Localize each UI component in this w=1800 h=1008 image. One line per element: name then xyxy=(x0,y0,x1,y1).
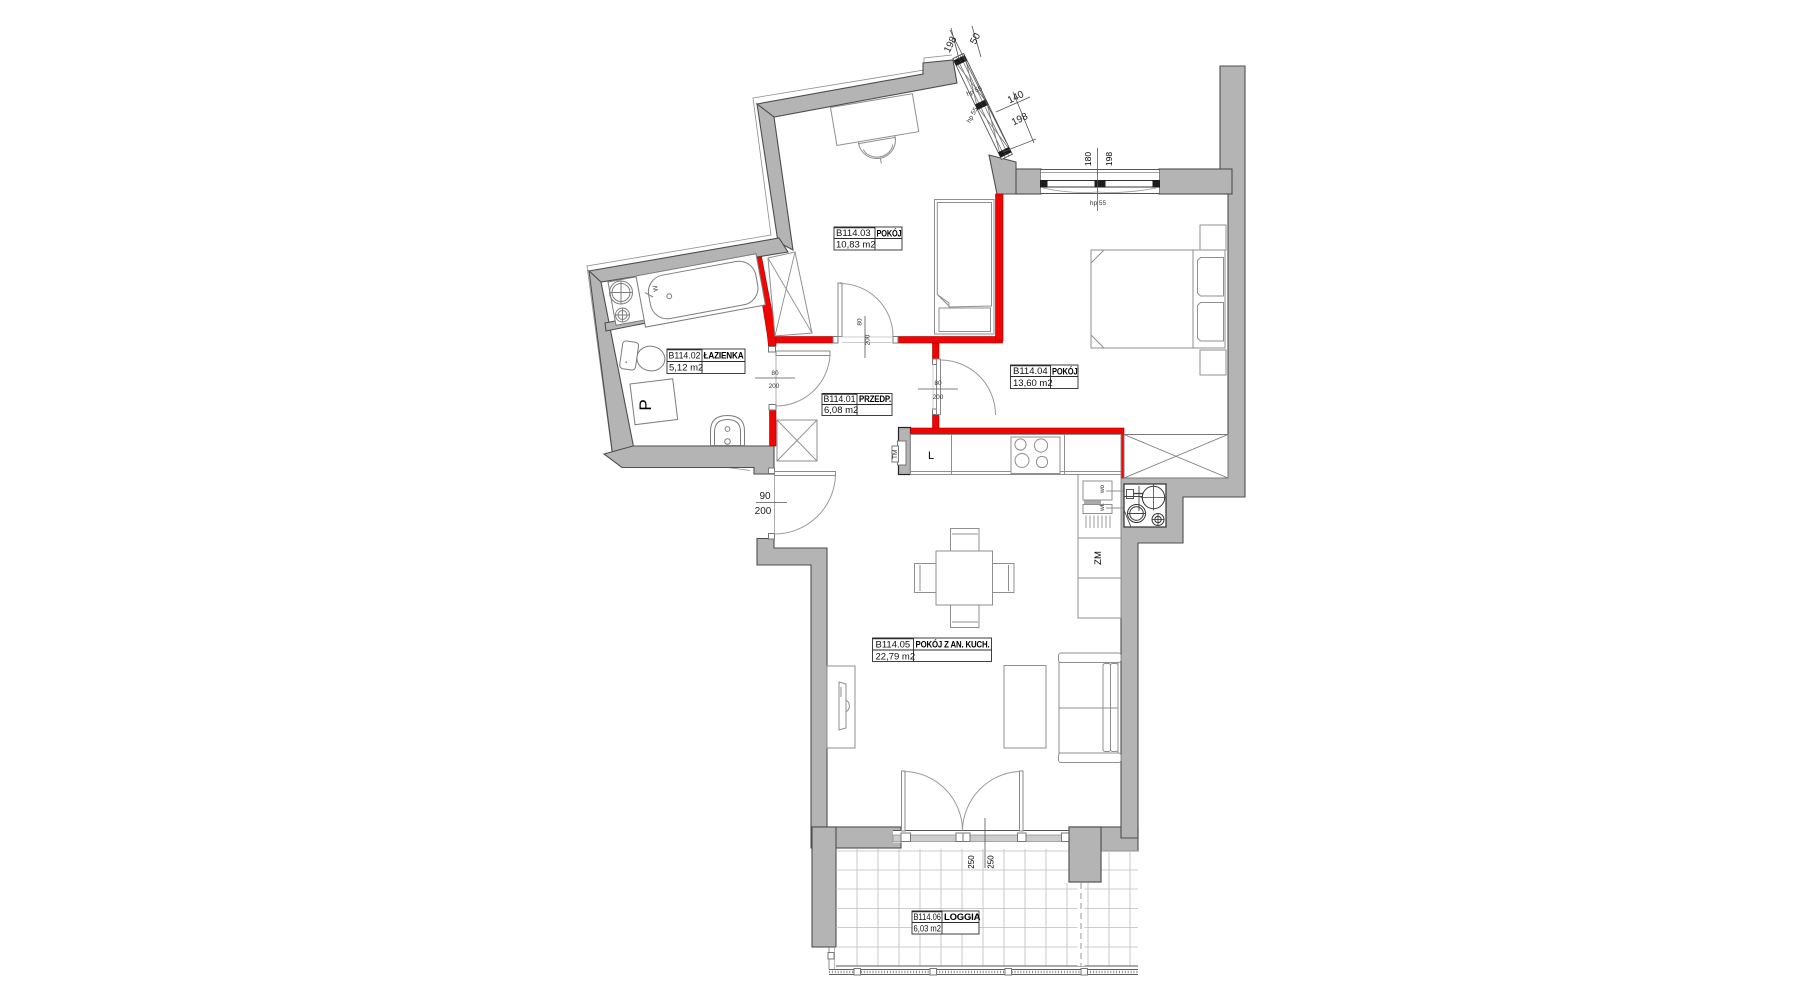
svg-text:250: 250 xyxy=(987,855,996,869)
svg-text:LOGGIA: LOGGIA xyxy=(944,912,981,923)
svg-text:6,08 m2: 6,08 m2 xyxy=(824,405,858,416)
svg-text:200: 200 xyxy=(865,334,872,345)
svg-text:90: 90 xyxy=(759,491,771,502)
svg-text:B114.05: B114.05 xyxy=(876,640,911,651)
svg-text:80: 80 xyxy=(934,380,942,387)
svg-text:B114.06: B114.06 xyxy=(914,912,942,923)
svg-text:200: 200 xyxy=(933,394,944,401)
svg-text:200: 200 xyxy=(755,506,772,517)
svg-text:10,83 m2: 10,83 m2 xyxy=(836,240,876,251)
svg-text:PRZEDP.: PRZEDP. xyxy=(859,394,891,405)
svg-text:198: 198 xyxy=(1104,152,1114,166)
svg-text:22,79 m2: 22,79 m2 xyxy=(876,652,916,663)
svg-text:180: 180 xyxy=(1083,152,1093,166)
svg-text:13,60 m2: 13,60 m2 xyxy=(1013,378,1053,389)
svg-text:B114.03: B114.03 xyxy=(836,228,871,239)
svg-text:ŁAZIENKA: ŁAZIENKA xyxy=(704,351,744,362)
svg-text:P: P xyxy=(636,399,655,410)
svg-text:ZM: ZM xyxy=(1093,551,1104,565)
svg-text:wo: wo xyxy=(1099,484,1106,494)
svg-text:hp 55: hp 55 xyxy=(1090,200,1107,207)
svg-text:wł.: wł. xyxy=(1099,503,1106,512)
svg-text:B114.02: B114.02 xyxy=(669,351,701,362)
svg-text:POKÓJ: POKÓJ xyxy=(877,228,902,240)
svg-text:L: L xyxy=(928,450,934,462)
svg-text:250: 250 xyxy=(967,855,976,869)
svg-text:6,03 m2: 6,03 m2 xyxy=(914,924,942,935)
svg-text:B114.04: B114.04 xyxy=(1013,366,1048,377)
svg-text:200: 200 xyxy=(769,383,780,390)
svg-text:80: 80 xyxy=(857,318,864,326)
svg-text:B114.01: B114.01 xyxy=(824,394,856,405)
svg-text:5,12 m2: 5,12 m2 xyxy=(669,363,703,374)
svg-text:TM: TM xyxy=(892,450,899,459)
svg-text:POKÓJ: POKÓJ xyxy=(1052,366,1078,378)
svg-text:80: 80 xyxy=(771,370,779,377)
svg-text:POKÓJ Z AN. KUCH.: POKÓJ Z AN. KUCH. xyxy=(916,639,990,651)
